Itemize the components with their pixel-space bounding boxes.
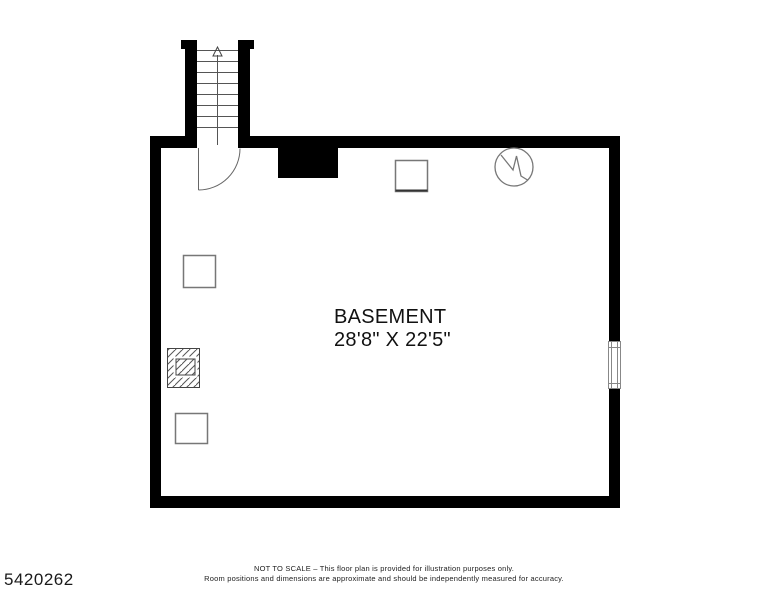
stair-wall-right [238, 40, 250, 140]
hatched-chimney [168, 349, 200, 388]
staircase-up [181, 40, 254, 145]
wall-bottom [150, 496, 620, 508]
chimney-notch [278, 148, 338, 178]
disclaimer: NOT TO SCALE – This floor plan is provid… [0, 564, 768, 583]
wall-left [150, 136, 161, 508]
water-heater-circle [495, 148, 533, 186]
wall-top-right-segment [238, 136, 620, 148]
wall-right [609, 136, 620, 508]
utility-square-top [396, 161, 428, 192]
utility-square-left-upper [184, 256, 216, 288]
window-right-wall [608, 341, 621, 389]
disclaimer-line-2: Room positions and dimensions are approx… [0, 574, 768, 584]
door-swing [199, 148, 241, 190]
room-dimensions: 28'8" X 22'5" [334, 329, 451, 352]
utility-square-left-lower [176, 414, 208, 444]
plan-id: 5420262 [4, 570, 74, 590]
floorplan-page: BASEMENT 28'8" X 22'5" NOT TO SCALE – Th… [0, 0, 768, 594]
floorplan-drawing [0, 0, 768, 594]
room-name: BASEMENT [334, 306, 451, 329]
room-label: BASEMENT 28'8" X 22'5" [334, 306, 451, 352]
stair-wall-left [185, 40, 197, 140]
disclaimer-line-1: NOT TO SCALE – This floor plan is provid… [0, 564, 768, 574]
